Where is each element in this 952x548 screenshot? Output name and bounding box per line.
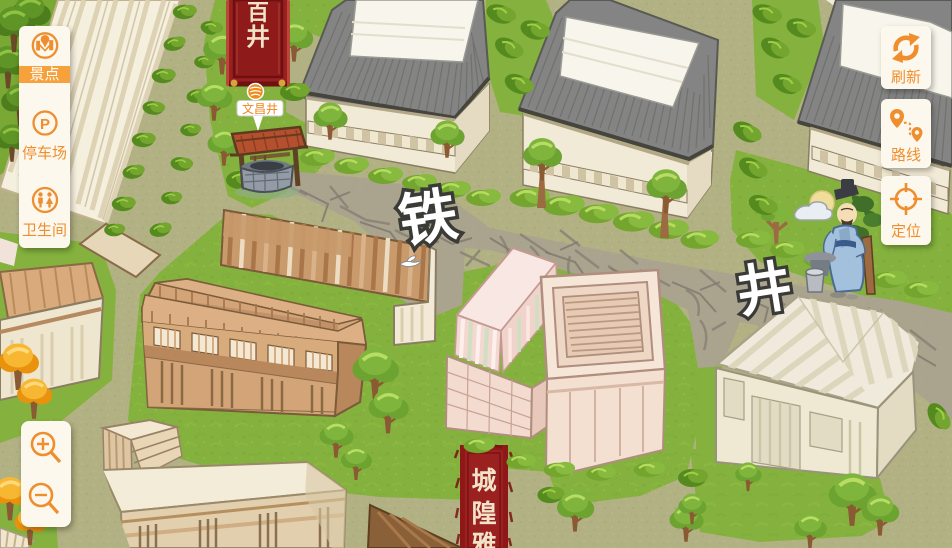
svg-text:井: 井 [732,254,796,324]
svg-text:刷新: 刷新 [891,69,921,86]
svg-text:百: 百 [247,0,269,25]
svg-text:路线: 路线 [891,147,921,164]
svg-text:文昌井: 文昌井 [242,101,278,116]
svg-text:铁: 铁 [394,182,461,255]
svg-text:定位: 定位 [891,223,921,240]
svg-text:P: P [40,116,50,133]
svg-text:城: 城 [471,467,496,495]
svg-text:雅: 雅 [471,531,496,548]
svg-text:井: 井 [246,24,270,51]
svg-text:隍: 隍 [471,500,496,528]
